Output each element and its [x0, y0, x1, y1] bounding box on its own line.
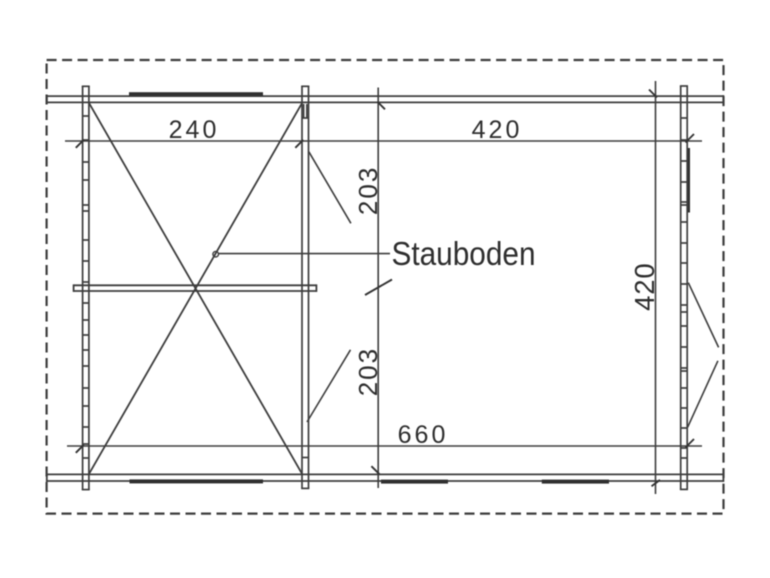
svg-text:203: 203: [353, 166, 383, 215]
svg-text:660: 660: [398, 421, 449, 449]
svg-text:203: 203: [353, 347, 383, 396]
svg-text:Stauboden: Stauboden: [392, 235, 536, 272]
svg-text:420: 420: [472, 116, 523, 144]
svg-text:420: 420: [629, 263, 660, 311]
svg-text:240: 240: [169, 116, 220, 144]
